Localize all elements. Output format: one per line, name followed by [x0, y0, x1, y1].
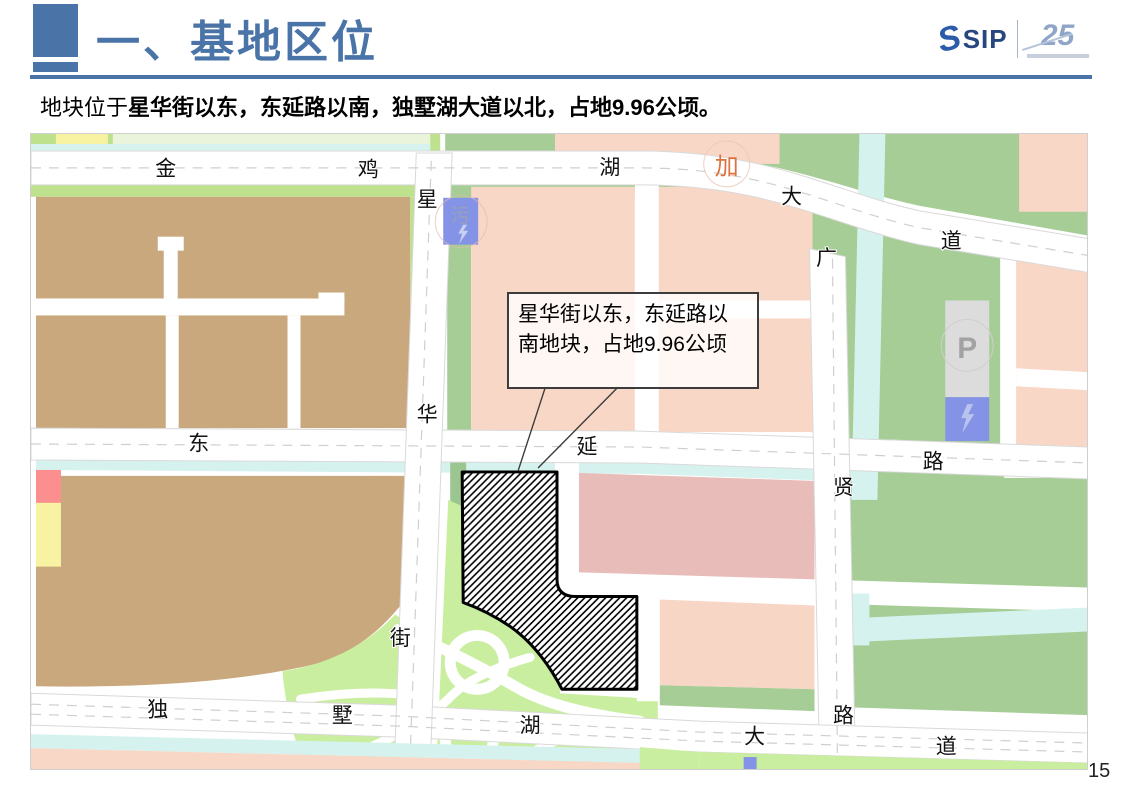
road-label-华: 华 — [417, 404, 438, 427]
page-title: 一、基地区位 — [96, 6, 378, 70]
title-decoration-bar — [33, 62, 78, 72]
site-callout: 星华街以东，东延路以南地块，占地9.96公顷 — [507, 292, 759, 389]
title-decoration-square — [33, 4, 78, 57]
poi-marker-污: 污 — [451, 205, 470, 227]
anniversary-logo: 25 — [1027, 21, 1089, 58]
road-label-金: 金 — [155, 157, 176, 180]
road-label-独: 独 — [147, 699, 168, 722]
location-map: 污加P 金鸡湖大道星华街东延路广贤路独墅湖大道 星华街以东，东延路以南地块，占地… — [30, 133, 1088, 770]
slide: 一、基地区位 S SIP 25 地块位于星华街以东，东延路以南，独墅湖大道以北，… — [0, 0, 1123, 794]
road-label-鸡: 鸡 — [358, 158, 379, 181]
road-label-湖: 湖 — [520, 715, 541, 738]
road-label-星: 星 — [417, 188, 438, 211]
sip-logo-text: SIP — [963, 24, 1008, 55]
road-label-延: 延 — [576, 436, 597, 459]
poi-marker-P: P — [957, 332, 977, 365]
title-divider — [30, 75, 1092, 79]
road-label-墅: 墅 — [332, 705, 353, 728]
sip-logo: S SIP 25 — [938, 14, 1089, 64]
subtitle-prefix: 地块位于 — [40, 95, 128, 120]
road-label-贤: 贤 — [833, 476, 854, 499]
road-label-道: 道 — [941, 230, 962, 253]
road-label-路: 路 — [923, 450, 944, 473]
logo-divider — [1017, 20, 1018, 58]
poi-marker-加: 加 — [715, 153, 739, 180]
road-label-东: 东 — [188, 433, 209, 456]
slide-subtitle: 地块位于星华街以东，东延路以南，独墅湖大道以北，占地9.96公顷。 — [40, 90, 721, 122]
road-label-广: 广 — [816, 247, 837, 270]
road-label-街: 街 — [390, 627, 411, 650]
road-label-大: 大 — [744, 726, 765, 749]
road-label-道: 道 — [936, 736, 957, 759]
subtitle-bold: 星华街以东，东延路以南，独墅湖大道以北，占地9.96公顷。 — [128, 95, 721, 120]
anniversary-caption — [1027, 54, 1089, 58]
road-label-大: 大 — [781, 185, 802, 208]
road-label-湖: 湖 — [599, 156, 620, 179]
road-label-路: 路 — [833, 705, 854, 728]
page-number: 15 — [1088, 760, 1110, 783]
map-canvas: 污加P 金鸡湖大道星华街东延路广贤路独墅湖大道 — [31, 134, 1087, 769]
sip-swirl-icon: S — [934, 17, 965, 60]
